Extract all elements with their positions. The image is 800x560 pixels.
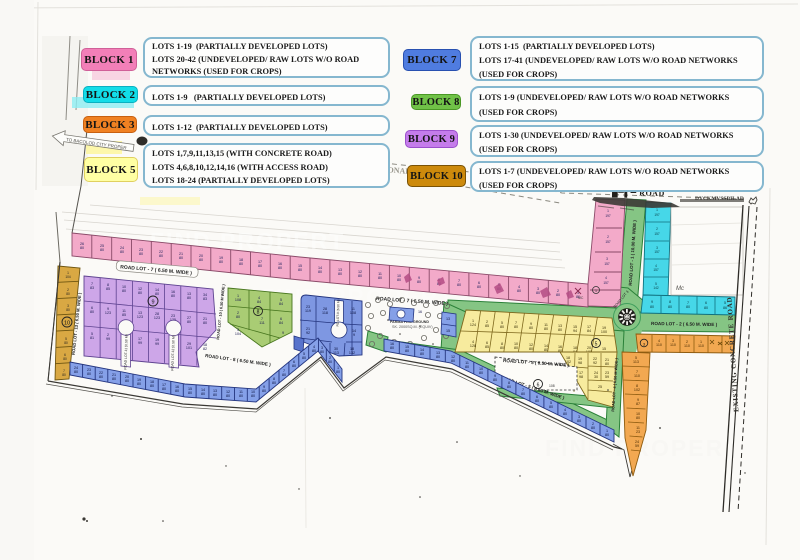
svg-text:92: 92 [593,361,597,365]
svg-text:104: 104 [235,332,241,336]
svg-text:85: 85 [106,287,110,291]
svg-text:80: 80 [358,274,362,278]
svg-text:80: 80 [159,254,163,258]
svg-text:80: 80 [100,248,104,252]
svg-text:80: 80 [137,382,141,386]
svg-text:80: 80 [420,352,424,356]
svg-text:132: 132 [349,351,355,355]
svg-text:80: 80 [199,258,203,262]
svg-text:1: 1 [656,208,658,212]
svg-text:80: 80 [262,389,266,393]
svg-text:59: 59 [635,444,639,448]
svg-text:128: 128 [470,344,476,348]
svg-text:80: 80 [171,294,175,298]
svg-text:2: 2 [656,227,658,231]
svg-text:15: 15 [446,329,450,333]
svg-text:80: 80 [99,375,103,379]
svg-text:80: 80 [90,310,94,314]
svg-text:80: 80 [201,392,205,396]
svg-text:113: 113 [633,360,639,364]
svg-text:23: 23 [636,430,640,434]
svg-text:6: 6 [705,301,707,305]
svg-text:25: 25 [598,385,602,389]
svg-text:80: 80 [138,291,142,295]
svg-text:80: 80 [517,289,521,293]
svg-text:4: 4 [626,316,628,320]
svg-text:80: 80 [236,315,240,319]
svg-text:4: 4 [605,276,607,280]
svg-text:92: 92 [306,331,310,335]
svg-text:80: 80 [477,285,481,289]
svg-text:80: 80 [74,370,78,374]
svg-text:80: 80 [213,393,217,397]
svg-text:80: 80 [64,341,68,345]
svg-text:Mc: Mc [676,286,684,292]
svg-text:81: 81 [90,336,94,340]
svg-text:80: 80 [336,370,340,374]
svg-text:80: 80 [272,381,276,385]
svg-text:104: 104 [65,275,71,279]
svg-text:110: 110 [684,344,690,348]
svg-text:9: 9 [353,333,355,337]
svg-text:80: 80 [239,262,243,266]
svg-text:80: 80 [500,325,504,329]
svg-text:80: 80 [605,433,609,437]
svg-text:8: 8 [669,300,671,304]
svg-text:142: 142 [653,286,659,290]
svg-text:80: 80 [636,416,640,420]
svg-text:80: 80 [187,296,191,300]
svg-text:80: 80 [87,372,91,376]
svg-text:80: 80 [150,384,154,388]
svg-text:80: 80 [320,350,324,354]
svg-text:80: 80 [686,305,690,309]
svg-text:80: 80 [318,270,322,274]
svg-text:110: 110 [656,343,662,347]
svg-text:157: 157 [653,268,659,272]
svg-text:80: 80 [226,394,230,398]
svg-text:85: 85 [485,345,489,349]
svg-text:80: 80 [188,391,192,395]
svg-text:124: 124 [470,323,476,327]
svg-text:110: 110 [698,344,704,348]
svg-text:80: 80 [66,292,70,296]
svg-text:80: 80 [493,378,497,382]
svg-text:80: 80 [544,348,548,352]
svg-text:80: 80 [514,325,518,329]
svg-text:80: 80 [529,347,533,351]
svg-text:157: 157 [604,262,610,266]
svg-text:80: 80 [179,256,183,260]
svg-text:80: 80 [558,328,562,332]
svg-text:111: 111 [259,321,265,325]
svg-text:10: 10 [64,321,70,327]
svg-text:99: 99 [155,342,159,346]
svg-text:83: 83 [90,286,94,290]
svg-text:80: 80 [479,371,483,375]
svg-text:80: 80 [514,346,518,350]
svg-text:80: 80 [120,250,124,254]
svg-text:98: 98 [579,375,583,379]
svg-text:99: 99 [106,337,110,341]
svg-text:123: 123 [105,311,111,315]
svg-text:80: 80 [66,308,70,312]
svg-text:59: 59 [605,375,609,379]
svg-text:119: 119 [305,309,311,313]
svg-text:197: 197 [654,213,660,217]
svg-text:80: 80 [292,364,296,368]
svg-text:80: 80 [80,246,84,250]
svg-text:80: 80 [451,359,455,363]
svg-text:84: 84 [257,300,261,304]
svg-text:MC: MC [578,296,584,300]
svg-text:9: 9 [151,300,154,306]
svg-text:80: 80 [457,283,461,287]
svg-text:99: 99 [138,341,142,345]
svg-text:84: 84 [587,329,591,333]
svg-text:80: 80 [139,252,143,256]
svg-text:80: 80 [500,346,504,350]
svg-text:80: 80 [258,264,262,268]
svg-text:80: 80 [549,405,553,409]
svg-text:80: 80 [278,266,282,270]
svg-text:3: 3 [606,257,608,261]
svg-text:80: 80 [556,293,560,297]
svg-text:80: 80 [239,394,243,398]
svg-text:2: 2 [607,235,609,239]
svg-text:30: 30 [594,375,598,379]
svg-text:101: 101 [186,346,192,350]
svg-text:80: 80 [312,349,316,353]
svg-text:80: 80 [397,278,401,282]
svg-text:80: 80 [436,355,440,359]
svg-text:80: 80 [162,387,166,391]
svg-text:85: 85 [485,324,489,328]
svg-text:8: 8 [257,310,260,316]
svg-text:84: 84 [279,302,283,306]
svg-text:84: 84 [279,321,283,325]
svg-text:85: 85 [122,313,126,317]
svg-text:80: 80 [282,373,286,377]
svg-text:80: 80 [219,260,223,264]
svg-text:108: 108 [235,298,241,302]
svg-text:1: 1 [607,209,609,213]
svg-text:80: 80 [122,289,126,293]
svg-text:9: 9 [651,300,653,304]
svg-text:123: 123 [137,315,143,319]
svg-text:113: 113 [333,351,339,355]
svg-text:80: 80 [465,365,469,369]
svg-text:6: 6 [537,383,540,389]
svg-text:80: 80 [668,305,672,309]
svg-text:80: 80 [187,320,191,324]
svg-text:80: 80 [328,360,332,364]
svg-text:157: 157 [654,232,660,236]
svg-text:100: 100 [601,330,607,334]
svg-text:80: 80 [704,306,708,310]
svg-text:123: 123 [154,316,160,320]
svg-text:94: 94 [573,329,577,333]
svg-text:80: 80 [251,394,255,398]
svg-text:80: 80 [390,346,394,350]
svg-text:110: 110 [634,374,640,378]
svg-text:80: 80 [112,377,116,381]
svg-text:80: 80 [417,280,421,284]
svg-text:80: 80 [529,326,533,330]
svg-text:80: 80 [62,373,66,377]
svg-text:80: 80 [338,272,342,276]
svg-text:197: 197 [605,214,611,218]
svg-text:80: 80 [591,426,595,430]
svg-text:80: 80 [125,379,129,383]
svg-text:110: 110 [670,343,676,347]
svg-text:108: 108 [350,311,356,315]
svg-text:83: 83 [203,297,207,301]
svg-text:108: 108 [549,384,555,388]
svg-text:80: 80 [521,392,525,396]
svg-text:157: 157 [605,240,611,244]
svg-text:80: 80 [563,412,567,416]
svg-text:80: 80 [378,276,382,280]
svg-text:80: 80 [650,305,654,309]
svg-text:SK. 2000SQ.M. (EQUIV): SK. 2000SQ.M. (EQUIV) [392,325,433,329]
svg-text:9: 9 [282,331,284,335]
svg-text:80: 80 [507,385,511,389]
svg-text:80: 80 [203,321,207,325]
svg-text:16: 16 [418,310,422,314]
svg-text:80: 80 [302,356,306,360]
svg-text:80: 80 [155,292,159,296]
svg-text:80: 80 [535,399,539,403]
svg-text:13: 13 [446,317,450,321]
svg-text:80: 80 [605,362,609,366]
svg-text:5: 5 [595,342,598,348]
svg-text:102: 102 [634,388,640,392]
svg-text:80: 80 [175,389,179,393]
svg-text:80: 80 [536,291,540,295]
svg-text:157: 157 [654,250,660,254]
svg-text:80: 80 [544,327,548,331]
svg-text:118: 118 [322,311,328,315]
svg-text:98: 98 [578,361,582,365]
svg-text:80: 80 [298,268,302,272]
svg-text:80: 80 [577,419,581,423]
svg-text:82: 82 [203,347,207,351]
svg-text:157: 157 [603,281,609,285]
svg-text:80: 80 [63,357,67,361]
svg-text:80: 80 [405,349,409,353]
svg-text:87: 87 [636,402,640,406]
